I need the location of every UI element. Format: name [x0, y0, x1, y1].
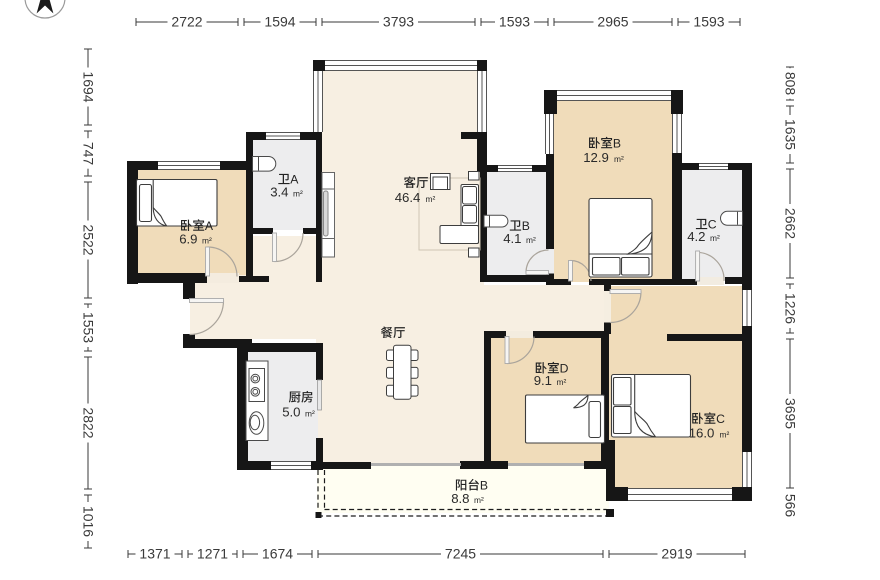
- svg-text:3793: 3793: [383, 14, 414, 30]
- svg-text:1553: 1553: [80, 312, 96, 343]
- svg-text:m²: m²: [474, 495, 484, 505]
- svg-text:4.2: 4.2: [687, 229, 705, 244]
- svg-text:B: B: [480, 479, 488, 493]
- svg-text:1694: 1694: [80, 71, 96, 102]
- svg-text:4.1: 4.1: [503, 231, 521, 246]
- svg-text:3695: 3695: [782, 398, 798, 429]
- svg-text:m²: m²: [614, 154, 624, 164]
- svg-text:16.0: 16.0: [689, 425, 715, 440]
- svg-text:m²: m²: [202, 235, 212, 245]
- svg-text:D: D: [560, 362, 569, 376]
- svg-text:9.1: 9.1: [534, 373, 552, 388]
- svg-text:566: 566: [782, 494, 798, 518]
- svg-text:m²: m²: [720, 429, 730, 439]
- svg-text:1271: 1271: [197, 546, 228, 562]
- svg-text:B: B: [522, 219, 530, 233]
- svg-text:3.4: 3.4: [270, 184, 288, 199]
- svg-text:2662: 2662: [782, 208, 798, 239]
- svg-text:7245: 7245: [445, 546, 476, 562]
- svg-text:1674: 1674: [262, 546, 293, 562]
- svg-text:1226: 1226: [782, 293, 798, 324]
- svg-text:1635: 1635: [782, 119, 798, 150]
- svg-text:1594: 1594: [264, 14, 295, 30]
- svg-text:46.4: 46.4: [395, 190, 421, 205]
- svg-text:1593: 1593: [499, 14, 530, 30]
- svg-text:1371: 1371: [139, 546, 170, 562]
- svg-text:C: C: [708, 218, 717, 232]
- svg-text:B: B: [613, 137, 621, 151]
- svg-text:6.9: 6.9: [179, 231, 197, 246]
- svg-text:2919: 2919: [661, 546, 692, 562]
- svg-text:m²: m²: [710, 233, 720, 243]
- svg-text:m²: m²: [526, 235, 536, 245]
- svg-text:A: A: [290, 173, 299, 187]
- svg-text:A: A: [205, 219, 214, 233]
- svg-text:m²: m²: [293, 188, 303, 198]
- svg-text:2522: 2522: [80, 224, 96, 255]
- svg-text:m²: m²: [557, 377, 567, 387]
- svg-text:1016: 1016: [80, 506, 96, 537]
- svg-text:C: C: [716, 412, 725, 426]
- svg-text:747: 747: [80, 142, 96, 166]
- svg-text:2722: 2722: [171, 14, 202, 30]
- svg-text:1593: 1593: [693, 14, 724, 30]
- svg-text:12.9: 12.9: [583, 150, 609, 165]
- svg-text:5.0: 5.0: [282, 404, 300, 419]
- svg-text:2822: 2822: [80, 407, 96, 438]
- svg-text:m²: m²: [426, 194, 436, 204]
- svg-text:m²: m²: [305, 408, 315, 418]
- svg-text:2965: 2965: [597, 14, 628, 30]
- svg-text:8.8: 8.8: [451, 491, 469, 506]
- svg-text:808: 808: [782, 72, 798, 96]
